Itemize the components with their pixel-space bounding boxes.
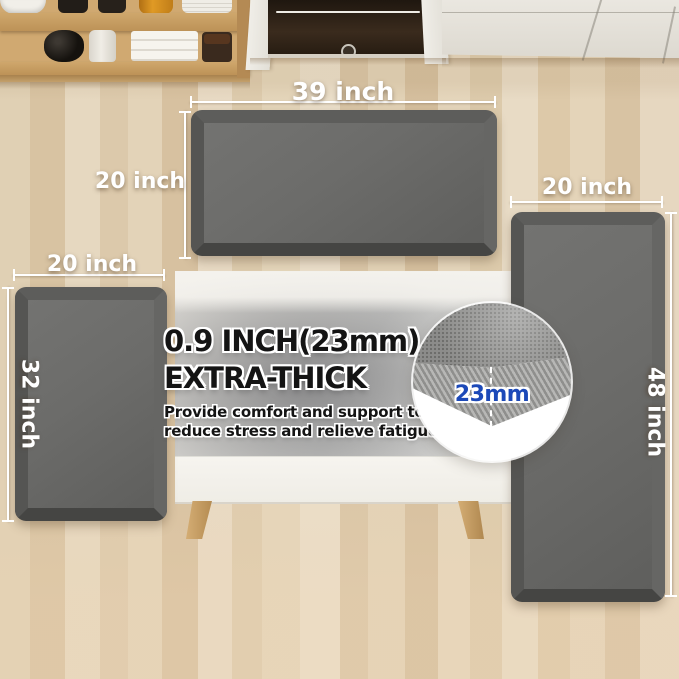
thickness-headline-line2: EXTRA-THICK [164,360,443,397]
dimension-line-right-mat-height [670,212,672,597]
product-scene: 39 inch 20 inch 20 inch 32 inch 20 inch … [0,0,679,679]
dimension-label-32-inch: 32 inch [17,359,42,449]
spice-jar [202,32,232,62]
white-bowl [0,0,46,14]
black-pot [44,30,84,62]
thickness-description-line2: reduce stress and relieve fatigue. [164,422,443,441]
amber-jar [139,0,173,14]
dimension-label-20-inch: 20 inch [90,169,190,194]
upper-cabinet [442,0,679,62]
inset-thickness-label: 23mm [455,382,529,407]
shadow [0,82,250,89]
plate-stack [182,0,232,13]
cabinet-seam [442,12,679,13]
shelf-board [0,62,250,75]
shelf-drawer-front [0,75,250,82]
dimension-line-left-mat-height [7,287,9,522]
top-mat [191,110,497,256]
folded-towels [131,31,198,61]
shelf-board [0,13,250,31]
thickness-callout: 0.9 INCH(23mm) EXTRA-THICK Provide comfo… [164,323,443,441]
dimension-label-20-inch: 20 inch [42,252,142,277]
oven-handle-bar [276,11,420,13]
white-jar [89,30,116,62]
thickness-description-line1: Provide comfort and support to [164,403,443,422]
kitchen-shelf [0,0,250,82]
shadow [250,58,446,65]
dimension-label-20-inch: 20 inch [537,175,637,200]
dimension-line-right-mat-width [510,201,663,203]
black-canister [98,0,126,13]
dimension-label-39-inch: 39 inch [283,77,403,106]
black-canister [58,0,88,13]
thickness-headline-line1: 0.9 INCH(23mm) [164,323,443,360]
oven [268,0,428,58]
dimension-label-48-inch: 48 inch [643,367,668,457]
thickness-inset-circle: 23mm [413,303,571,461]
table-front-edge [175,456,512,504]
shadow [442,58,679,68]
